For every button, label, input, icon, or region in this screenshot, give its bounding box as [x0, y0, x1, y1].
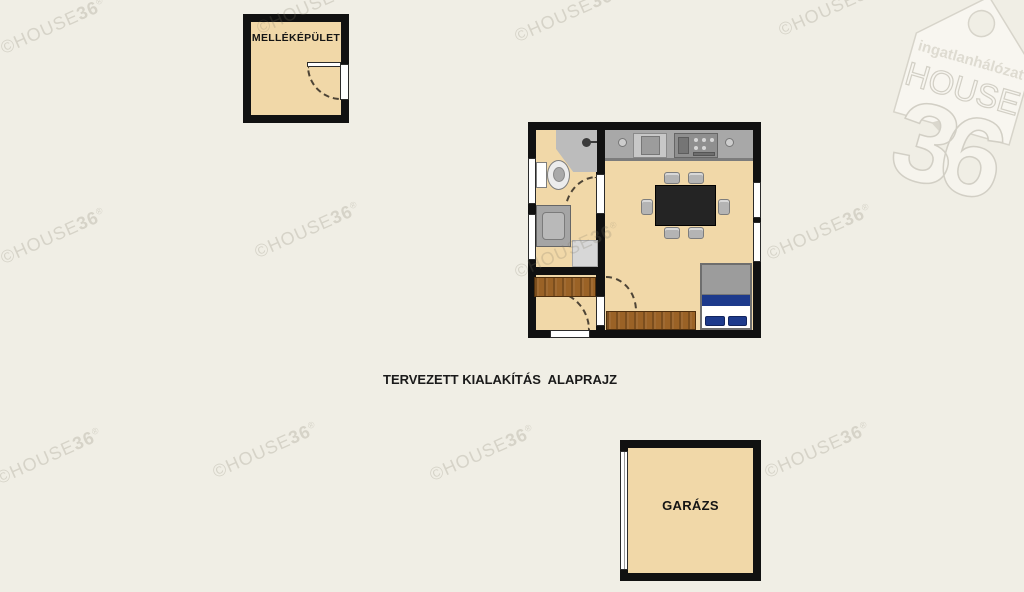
window	[528, 158, 536, 204]
stove-burner	[694, 138, 698, 142]
bed-band	[702, 295, 750, 306]
main-building	[528, 122, 761, 338]
window	[753, 222, 761, 262]
garage-door	[620, 451, 628, 570]
plan-title: TERVEZETT KIALAKÍTÁS ALAPRAJZ	[383, 372, 617, 387]
outbuilding-door-opening	[340, 64, 349, 100]
hall-bench	[534, 277, 596, 297]
window	[753, 182, 761, 218]
stove-burner	[702, 146, 706, 150]
shower-arm	[589, 141, 597, 143]
stove-burner	[702, 138, 706, 142]
watermark: ©HOUSE36®	[251, 198, 363, 263]
chair	[664, 227, 680, 239]
stove-oven-bar	[693, 152, 715, 156]
bed-blanket	[702, 265, 750, 295]
sink-basin	[641, 136, 660, 155]
garage-wall-top	[620, 440, 761, 448]
chair	[688, 172, 704, 184]
dining-table	[655, 185, 716, 226]
stove-burner	[710, 138, 714, 142]
brand-logo: ingatlanhálózat HOUSE 36	[878, 0, 1024, 210]
bed-pillow	[728, 316, 747, 326]
watermark: ©HOUSE36®	[775, 0, 887, 41]
bed	[700, 263, 752, 330]
bed-pillow	[705, 316, 725, 326]
chair	[664, 172, 680, 184]
stove-burner	[694, 146, 698, 150]
watermark: ©HOUSE36®	[209, 418, 321, 483]
watermark: ©HOUSE36®	[511, 0, 623, 47]
watermark: ©HOUSE36®	[761, 418, 873, 483]
watermark: ©HOUSE36®	[763, 200, 875, 265]
counter-knob	[725, 138, 734, 147]
kitchen-sink	[633, 133, 667, 158]
chair	[641, 199, 653, 215]
garage-wall-bottom	[620, 573, 761, 581]
kitchen-counter	[605, 130, 753, 161]
watermark: ©HOUSE36®	[426, 421, 538, 486]
garage-wall-right	[753, 440, 761, 581]
watermark: ©HOUSE36®	[0, 0, 109, 59]
sideboard	[606, 311, 696, 330]
floorplan-canvas: MELLÉKÉPÜLET	[0, 0, 1024, 592]
hall-door-opening	[596, 296, 605, 326]
chair	[688, 227, 704, 239]
counter-knob	[618, 138, 627, 147]
garage-door-seam	[624, 452, 625, 569]
garage-label: GARÁZS	[628, 498, 753, 513]
stove-panel	[678, 137, 689, 154]
washing-machine-lid	[542, 212, 565, 240]
stove	[674, 133, 718, 158]
bathroom-door-opening	[596, 174, 605, 214]
toilet-tank	[536, 162, 547, 188]
watermark: ©HOUSE36®	[0, 424, 105, 489]
entrance-door-opening	[550, 330, 590, 338]
garage-wall-stub	[620, 448, 628, 451]
garage: GARÁZS	[620, 440, 761, 581]
chair	[718, 199, 730, 215]
toilet-bowl-inner	[553, 167, 565, 182]
watermark: ©HOUSE36®	[0, 204, 109, 269]
garage-wall-stub	[620, 570, 628, 573]
